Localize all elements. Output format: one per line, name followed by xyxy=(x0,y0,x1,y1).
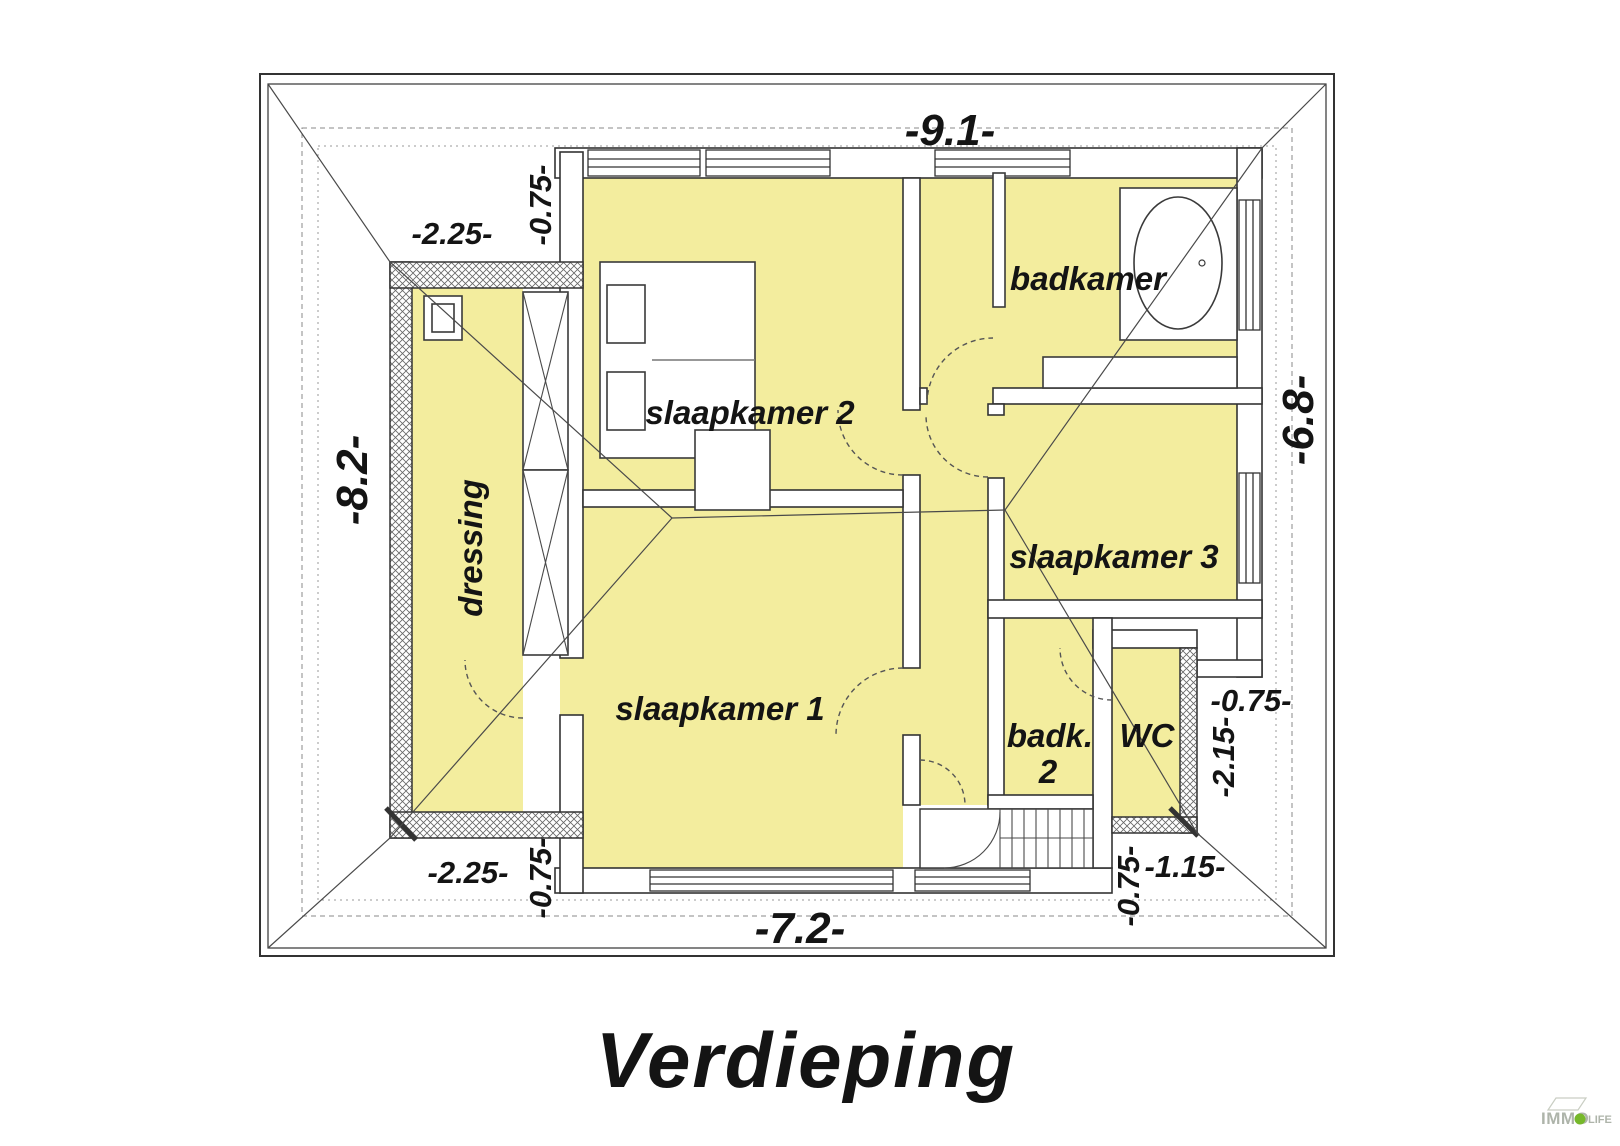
label-slaapkamer1: slaapkamer 1 xyxy=(615,690,824,727)
floor-plan-page: -9.1- -2.25- -0.75- -8.2- -6.8- -0.75- -… xyxy=(0,0,1620,1146)
floor-plan-drawing: -9.1- -2.25- -0.75- -8.2- -6.8- -0.75- -… xyxy=(0,0,1620,1146)
window-right-slaapkamer3 xyxy=(1239,473,1260,583)
dim-bottom-right-width: -1.15- xyxy=(1145,849,1226,884)
window-bottom-2 xyxy=(915,870,1030,891)
wardrobe-closets xyxy=(523,292,568,655)
staircase xyxy=(920,809,1093,868)
window-bottom-1 xyxy=(650,870,893,891)
label-badkamer2: badk. xyxy=(1007,717,1093,754)
slaapkamer1-floor xyxy=(583,507,903,868)
window-right-badkamer xyxy=(1239,200,1260,330)
dim-top-left-offset: -0.75- xyxy=(523,165,558,246)
logo-dot-icon xyxy=(1575,1114,1586,1125)
wall-niche xyxy=(695,430,770,510)
dim-bottom-right-offset: -0.75- xyxy=(1111,846,1146,927)
dim-wc-side-height: -2.15- xyxy=(1206,717,1241,798)
dim-right-roof-offset: -0.75- xyxy=(1211,683,1292,718)
label-wc: WC xyxy=(1120,717,1176,754)
vanity xyxy=(1043,357,1237,388)
immolife-logo: IMMO LIFE xyxy=(1541,1098,1612,1128)
label-badkamer2-number: 2 xyxy=(1038,753,1058,790)
dim-top-width: -9.1- xyxy=(905,106,995,155)
pillow xyxy=(607,285,645,343)
hall-floor xyxy=(920,404,988,805)
label-slaapkamer3: slaapkamer 3 xyxy=(1009,538,1218,575)
label-badkamer: badkamer xyxy=(1010,260,1168,297)
window-top-2 xyxy=(706,150,830,176)
pillow xyxy=(607,372,645,430)
label-slaapkamer2: slaapkamer 2 xyxy=(645,394,855,431)
dim-left-height: -8.2- xyxy=(328,435,377,525)
shower-partition xyxy=(993,173,1005,307)
window-top-1 xyxy=(588,150,700,176)
dim-top-left-width: -2.25- xyxy=(412,216,493,251)
dim-bottom-left-offset: -0.75- xyxy=(523,838,558,919)
dim-right-height: -6.8- xyxy=(1274,375,1323,465)
dim-bottom-width: -7.2- xyxy=(755,904,845,953)
plan-title: Verdieping xyxy=(596,1016,1016,1104)
label-dressing: dressing xyxy=(452,479,489,617)
dim-bottom-left-width: -2.25- xyxy=(428,855,509,890)
logo-text-life: LIFE xyxy=(1588,1114,1612,1126)
